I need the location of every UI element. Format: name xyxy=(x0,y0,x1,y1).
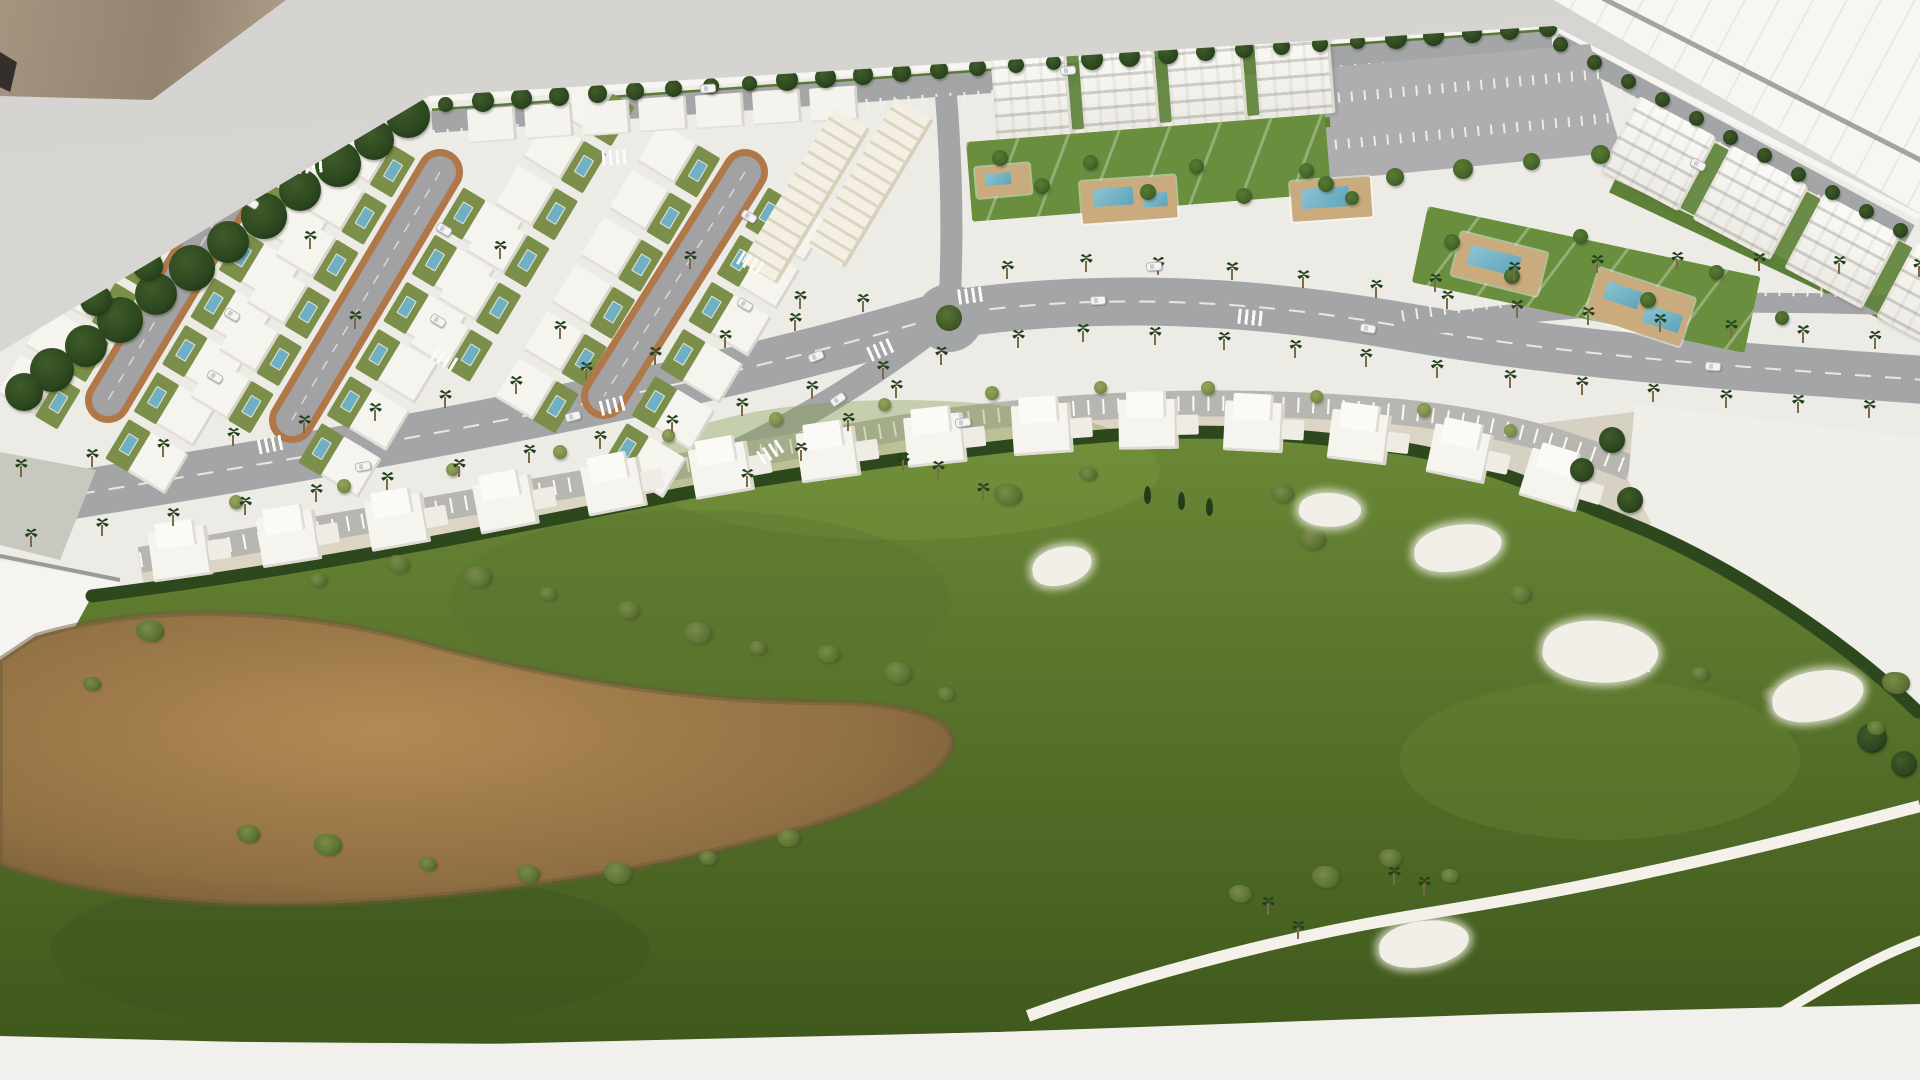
villa xyxy=(110,165,195,242)
palm-tree-icon xyxy=(1291,920,1305,940)
tree-icon xyxy=(769,412,783,426)
palm-tree-icon xyxy=(1217,331,1231,351)
tree-icon xyxy=(1587,55,1602,70)
palm-tree-icon xyxy=(1079,253,1093,273)
model-base xyxy=(0,0,1920,1080)
cypress-icon xyxy=(1144,486,1151,504)
bush-icon xyxy=(237,825,260,843)
palm-tree-icon xyxy=(1575,376,1589,396)
palm-tree-icon xyxy=(1503,369,1517,389)
bush-icon xyxy=(617,601,640,619)
palm-tree-icon xyxy=(976,482,990,502)
bush-icon xyxy=(419,857,437,871)
tree-icon xyxy=(472,90,494,112)
bush-icon xyxy=(1229,885,1252,903)
car xyxy=(435,222,453,238)
car xyxy=(700,83,717,93)
palm-tree-icon xyxy=(1719,389,1733,409)
tree-icon xyxy=(1791,167,1806,182)
car xyxy=(1090,296,1106,306)
palm-tree-icon xyxy=(156,438,170,458)
palm-tree-icon xyxy=(1752,252,1766,272)
bush-icon xyxy=(309,573,327,587)
tree-icon xyxy=(1709,265,1724,280)
tree-icon xyxy=(1599,427,1625,453)
tree-icon xyxy=(665,80,682,97)
zebra-crossing xyxy=(866,337,896,361)
background-wall xyxy=(0,0,300,100)
zebra-crossing xyxy=(1237,309,1264,327)
bush-icon xyxy=(314,834,342,856)
palm-tree-icon xyxy=(841,412,855,432)
palm-tree-icon xyxy=(856,293,870,313)
palm-tree-icon xyxy=(309,483,323,503)
tree-icon xyxy=(1034,178,1050,194)
bush-icon xyxy=(1441,869,1459,883)
palm-tree-icon xyxy=(380,471,394,491)
pool-deck xyxy=(1585,268,1696,346)
villa-pool xyxy=(161,202,182,225)
bush-icon xyxy=(937,687,955,701)
palm-tree-icon xyxy=(788,312,802,332)
tree-icon xyxy=(1235,40,1253,58)
bush-icon xyxy=(1379,849,1402,867)
cypress-icon xyxy=(1178,492,1185,510)
bush-icon xyxy=(1867,721,1885,735)
tree-icon xyxy=(1189,159,1204,174)
tree-icon xyxy=(1350,34,1365,49)
bush-icon xyxy=(994,484,1022,506)
palm-tree-icon xyxy=(735,397,749,417)
palm-tree-icon xyxy=(648,346,662,366)
bush-icon xyxy=(777,829,800,847)
tree-icon xyxy=(892,63,911,82)
tree-icon xyxy=(1385,27,1407,49)
bush-icon xyxy=(136,620,164,642)
tree-icon xyxy=(133,251,163,281)
palm-tree-icon xyxy=(1387,866,1401,886)
tree-icon xyxy=(1310,390,1323,403)
model-photo xyxy=(0,0,1920,1080)
tree-icon xyxy=(438,97,453,112)
palm-tree-icon xyxy=(1428,273,1442,293)
tree-icon xyxy=(1312,36,1328,52)
palm-tree-icon xyxy=(1076,323,1090,343)
tree-icon xyxy=(878,398,891,411)
tree-icon xyxy=(985,386,999,400)
palm-tree-icon xyxy=(85,448,99,468)
sand-bunker xyxy=(1770,666,1867,725)
tree-icon xyxy=(169,245,215,291)
tree-icon xyxy=(511,88,532,109)
palm-tree-icon xyxy=(718,329,732,349)
bush-icon xyxy=(1298,528,1326,550)
palm-tree-icon xyxy=(1417,876,1431,896)
tree-icon xyxy=(1453,159,1473,179)
car xyxy=(1146,261,1163,271)
villa-house xyxy=(82,213,143,275)
palm-tree-icon xyxy=(579,361,593,381)
palm-tree-icon xyxy=(1507,261,1521,281)
tree-icon xyxy=(1423,25,1444,46)
pool-deck xyxy=(1080,175,1178,224)
tree-icon xyxy=(1081,48,1103,70)
palm-tree-icon xyxy=(1359,348,1373,368)
tree-icon xyxy=(853,65,873,85)
tree-icon xyxy=(815,67,836,88)
bush-icon xyxy=(604,862,632,884)
car xyxy=(1060,65,1077,75)
car xyxy=(740,209,758,225)
palm-tree-icon xyxy=(1590,254,1604,274)
tree-icon xyxy=(1891,751,1917,777)
tree-icon xyxy=(1655,92,1670,107)
bush-icon xyxy=(1312,866,1340,888)
palm-tree-icon xyxy=(438,389,452,409)
palm-tree-icon xyxy=(1912,258,1920,278)
palm-tree-icon xyxy=(805,380,819,400)
tree-icon xyxy=(337,479,351,493)
palm-tree-icon xyxy=(1296,269,1310,289)
tree-icon xyxy=(1140,184,1156,200)
swimming-pool xyxy=(985,172,1012,186)
tree-icon xyxy=(1046,55,1061,70)
tree-icon xyxy=(1723,130,1738,145)
car xyxy=(564,410,582,423)
palm-tree-icon xyxy=(889,379,903,399)
palm-tree-icon xyxy=(1288,339,1302,359)
bush-icon xyxy=(83,677,101,691)
tree-icon xyxy=(1386,168,1404,186)
tree-icon xyxy=(1500,21,1519,40)
tree-icon xyxy=(279,169,321,211)
tree-icon xyxy=(1008,57,1024,73)
palm-tree-icon xyxy=(452,458,466,478)
palm-tree-icon xyxy=(931,460,945,480)
tree-icon xyxy=(1158,44,1178,64)
tree-icon xyxy=(1462,23,1482,43)
palm-tree-icon xyxy=(1148,326,1162,346)
palm-tree-icon xyxy=(1261,896,1275,916)
swimming-pool xyxy=(1603,281,1643,309)
zebra-crossing xyxy=(736,250,766,276)
palm-tree-icon xyxy=(876,360,890,380)
palm-tree-icon xyxy=(24,528,38,548)
palm-tree-icon xyxy=(1653,313,1667,333)
villa-yard xyxy=(177,141,223,194)
tree-icon xyxy=(1299,163,1314,178)
palm-tree-icon xyxy=(297,414,311,434)
tree-icon xyxy=(1689,111,1704,126)
palm-tree-icon xyxy=(1724,319,1738,339)
cypress-icon xyxy=(1206,498,1213,516)
palm-tree-icon xyxy=(1430,359,1444,379)
palm-tree-icon xyxy=(226,427,240,447)
bush-icon xyxy=(1509,585,1532,603)
palm-tree-icon xyxy=(934,346,948,366)
palm-tree-icon xyxy=(1369,279,1383,299)
tree-icon xyxy=(354,120,394,160)
tree-icon xyxy=(1345,191,1359,205)
tree-icon xyxy=(1417,403,1431,417)
bush-icon xyxy=(1271,485,1294,503)
palm-tree-icon xyxy=(593,430,607,450)
car xyxy=(1705,361,1722,371)
palm-tree-icon xyxy=(1225,261,1239,281)
car xyxy=(354,461,371,473)
palm-tree-icon xyxy=(14,458,28,478)
palm-tree-icon xyxy=(896,452,910,472)
palm-tree-icon xyxy=(522,444,536,464)
car xyxy=(1359,323,1376,334)
bush-icon xyxy=(1079,467,1097,481)
tree-icon xyxy=(1825,185,1840,200)
tree-icon xyxy=(1621,74,1636,89)
tree-icon xyxy=(1504,424,1517,437)
bush-icon xyxy=(699,851,717,865)
sand-bunker xyxy=(1030,543,1095,589)
tree-icon xyxy=(1775,311,1789,325)
tree-icon xyxy=(1236,188,1252,204)
palm-tree-icon xyxy=(1796,324,1810,344)
tree-icon xyxy=(1757,148,1772,163)
palm-tree-icon xyxy=(1581,306,1595,326)
palm-tree-icon xyxy=(1440,290,1454,310)
vegetation-layer xyxy=(0,0,1920,1080)
tree-icon xyxy=(1570,458,1594,482)
bush-icon xyxy=(517,865,540,883)
palm-tree-icon xyxy=(1011,329,1025,349)
villa-house xyxy=(110,166,171,228)
palm-tree-icon xyxy=(1670,251,1684,271)
tree-icon xyxy=(1444,234,1460,250)
bush-icon xyxy=(684,622,712,644)
car xyxy=(429,313,447,329)
bush-icon xyxy=(884,662,912,684)
car xyxy=(206,369,224,385)
zebra-crossing xyxy=(602,149,629,166)
bush-icon xyxy=(387,555,410,573)
tree-icon xyxy=(1119,46,1140,67)
pool-deck xyxy=(975,163,1031,198)
palm-tree-icon xyxy=(348,310,362,330)
car xyxy=(807,349,825,363)
palm-tree-icon xyxy=(1868,330,1882,350)
palm-tree-icon xyxy=(1862,399,1876,419)
palm-tree-icon xyxy=(303,230,317,250)
tree-icon xyxy=(5,373,43,411)
tree-icon xyxy=(626,82,644,100)
villa-yard xyxy=(148,188,194,241)
villa xyxy=(138,118,223,195)
zebra-crossing xyxy=(430,346,460,372)
palm-tree-icon xyxy=(1791,394,1805,414)
villa-pool xyxy=(190,155,211,178)
sand-bunker xyxy=(1378,918,1471,970)
tree-icon xyxy=(1196,42,1215,61)
tree-icon xyxy=(386,94,430,138)
bush-icon xyxy=(539,587,557,601)
car xyxy=(829,391,847,408)
villa-house xyxy=(139,118,200,180)
tree-icon xyxy=(553,445,567,459)
palm-tree-icon xyxy=(794,442,808,462)
palm-tree-icon xyxy=(665,414,679,434)
tree-icon xyxy=(1318,176,1334,192)
zebra-crossing xyxy=(298,157,325,174)
tree-icon xyxy=(549,86,569,106)
bush-icon xyxy=(817,645,840,663)
swimming-pool xyxy=(1093,186,1134,207)
car xyxy=(1689,157,1707,172)
palm-tree-icon xyxy=(493,240,507,260)
palm-tree-icon xyxy=(368,402,382,422)
zebra-crossing xyxy=(756,438,786,465)
tree-icon xyxy=(1893,223,1908,238)
tree-icon xyxy=(1553,37,1568,52)
palm-tree-icon xyxy=(1832,255,1846,275)
tree-icon xyxy=(1591,145,1610,164)
tree-icon xyxy=(1640,292,1656,308)
palm-tree-icon xyxy=(509,375,523,395)
tree-icon xyxy=(1859,204,1874,219)
tree-icon xyxy=(1094,381,1107,394)
bush-icon xyxy=(1882,672,1910,694)
palm-tree-icon xyxy=(740,468,754,488)
bush-icon xyxy=(749,641,767,655)
car xyxy=(223,307,241,323)
sand-bunker xyxy=(1297,490,1362,530)
tree-icon xyxy=(1273,38,1290,55)
bush-icon xyxy=(464,566,492,588)
tree-icon xyxy=(992,150,1008,166)
tree-icon xyxy=(207,221,249,263)
palm-tree-icon xyxy=(683,250,697,270)
tree-icon xyxy=(1083,155,1098,170)
bush-icon xyxy=(1691,667,1709,681)
tree-icon xyxy=(742,76,757,91)
tree-icon xyxy=(930,61,948,79)
palm-tree-icon xyxy=(166,507,180,527)
palm-tree-icon xyxy=(553,320,567,340)
tree-icon xyxy=(1539,19,1557,37)
palm-tree-icon xyxy=(95,517,109,537)
tree-icon xyxy=(241,193,287,239)
car xyxy=(954,417,971,428)
tree-icon xyxy=(1573,229,1588,244)
tree-icon xyxy=(969,59,986,76)
tree-icon xyxy=(588,84,607,103)
tree-icon xyxy=(80,284,112,316)
palm-tree-icon xyxy=(1000,260,1014,280)
zebra-crossing xyxy=(957,286,985,304)
roundabout-bush xyxy=(936,305,962,331)
zebra-crossing xyxy=(599,395,628,416)
tree-icon xyxy=(1523,153,1540,170)
palm-tree-icon xyxy=(1510,299,1524,319)
palm-tree-icon xyxy=(238,496,252,516)
sand-bunker xyxy=(1412,521,1504,574)
tree-icon xyxy=(776,69,798,91)
palm-tree-icon xyxy=(793,290,807,310)
tree-icon xyxy=(1201,381,1215,395)
pool-deck xyxy=(1451,232,1547,296)
tree-icon xyxy=(1617,487,1643,513)
zebra-crossing xyxy=(257,434,286,454)
palm-tree-icon xyxy=(1646,383,1660,403)
car xyxy=(736,297,754,313)
